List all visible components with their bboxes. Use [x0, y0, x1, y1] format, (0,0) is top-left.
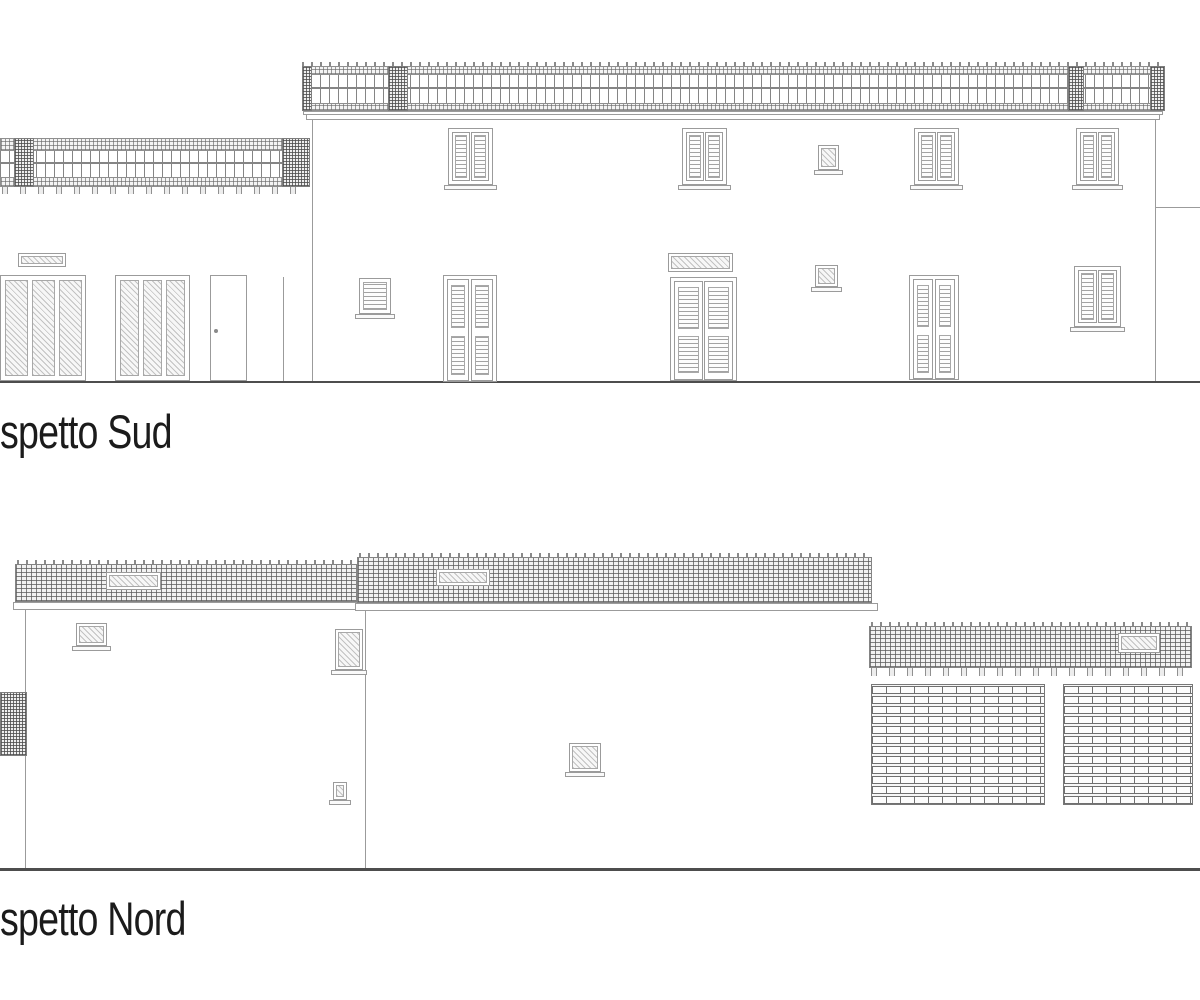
roof-a-vent [106, 572, 161, 590]
ground-window-right-sill [1070, 327, 1125, 332]
upper-window-1-sill [444, 185, 497, 190]
ground-line-sud [0, 381, 1200, 383]
roof-a-vent-glass [109, 575, 158, 587]
main-pergola-top-band [302, 66, 1165, 75]
shuttered-door-3-louver-top [939, 285, 951, 327]
upper-window-4-shutter-right [1098, 132, 1115, 181]
north-window-1-sill [72, 646, 111, 651]
glazed-door-left-2-glass-panel [143, 280, 162, 376]
north-window-3 [569, 743, 601, 772]
ground-louver-window-louver [363, 282, 387, 310]
shuttered-door-1-leaf-right [471, 279, 493, 381]
north-window-3-sill [565, 772, 605, 777]
main-pergola-pillar-3 [1068, 66, 1084, 111]
wing-pergola-midrail [0, 162, 310, 164]
shuttered-door-3-leaf-left [913, 279, 933, 379]
elevation-label-nord: spetto Nord [0, 895, 256, 947]
main-wall-right-edge [1155, 119, 1156, 381]
glazed-door-left-1-glass-panel [59, 280, 82, 376]
roof-b-vent [436, 569, 490, 586]
shuttered-door-3-louver-top [917, 285, 929, 327]
transom-window-left-glass [21, 256, 63, 264]
glazed-door-left-2 [115, 275, 190, 381]
upper-window-4 [1076, 128, 1119, 185]
shuttered-door-3-louver-bottom [917, 335, 929, 373]
shuttered-door-1-leaf-left [447, 279, 469, 381]
shuttered-door-2-louver-bottom [708, 336, 729, 373]
roof-a-tile-band [15, 564, 357, 602]
ground-window-right-louver [1081, 273, 1094, 320]
main-pergola-bottom-band [302, 103, 1165, 111]
ground-window-right-shutter-right [1098, 270, 1117, 323]
upper-window-4-sill [1072, 185, 1123, 190]
glazed-door-left-1-glass-panel [5, 280, 28, 376]
roof-b-fascia [355, 603, 878, 611]
upper-window-1 [448, 128, 493, 185]
north-vent-sill [329, 800, 351, 805]
service-door [210, 275, 247, 381]
adjacent-roofline-right [1155, 207, 1200, 208]
main-wall-left-edge [312, 119, 313, 381]
upper-window-3-shutter-right [937, 132, 955, 181]
upper-small-window-sill [814, 170, 843, 175]
upper-window-1-louver [455, 135, 467, 178]
upper-window-2-shutter-left [686, 132, 704, 181]
glazed-door-left-2-glass-panel [166, 280, 185, 376]
shuttered-door-1-louver-bottom [451, 336, 465, 375]
wing-pergola-pillar-right [282, 138, 310, 187]
shuttered-door-3 [909, 275, 959, 380]
shuttered-door-3-louver-bottom [939, 335, 951, 373]
upper-window-2 [682, 128, 727, 185]
ground-small-window-sill [811, 287, 842, 292]
upper-window-3-shutter-left [918, 132, 936, 181]
upper-window-2-louver [708, 135, 720, 178]
main-pergola-pillar-1 [302, 66, 312, 111]
wing-roof-vent [1118, 633, 1160, 653]
upper-window-3-louver [940, 135, 952, 178]
north-window-2-sill [331, 670, 367, 675]
upper-window-4-louver [1083, 135, 1094, 178]
wing-roof-vent-glass [1121, 636, 1157, 650]
shuttered-door-2-louver-top [678, 287, 699, 329]
upper-window-3 [914, 128, 959, 185]
brick-lattice-panel-1 [871, 684, 1045, 805]
shuttered-door-1 [443, 275, 497, 382]
transom-window-mid [668, 253, 733, 272]
ground-louver-window [359, 278, 391, 314]
upper-window-3-sill [910, 185, 963, 190]
ground-louver-window-sill [355, 314, 395, 319]
main-pergola-posts [302, 75, 1165, 103]
wing-pergola-feet [2, 187, 308, 194]
elevation-drawing-canvas: spetto Sudspetto Nord [0, 0, 1200, 1000]
upper-window-3-louver [921, 135, 933, 178]
main-pergola-pillar-2 [388, 66, 408, 111]
ground-small-window [815, 265, 838, 287]
wing-roof-feet [871, 668, 1192, 676]
main-wall-top-edge [312, 119, 1155, 120]
service-door-knob [214, 329, 218, 333]
north-wall-division [365, 610, 366, 868]
main-pergola-pillar-4 [1150, 66, 1165, 111]
upper-small-window-glass [821, 148, 836, 167]
shuttered-door-1-louver-top [451, 285, 465, 328]
upper-window-4-louver [1101, 135, 1112, 178]
brick-lattice-panel-2 [1063, 684, 1193, 805]
shuttered-door-1-louver-bottom [475, 336, 489, 375]
upper-window-2-shutter-right [705, 132, 723, 181]
wing-pergola-bottom-band [0, 177, 310, 187]
roof-b-tile-band [357, 557, 872, 603]
wing-wall-corner [283, 277, 284, 381]
roof-a-fascia [13, 602, 361, 610]
upper-small-window [818, 145, 839, 170]
north-vent-glass [336, 785, 344, 797]
roof-b-vent-glass [439, 572, 487, 583]
upper-window-2-sill [678, 185, 731, 190]
upper-window-1-shutter-left [452, 132, 470, 181]
north-window-2 [335, 629, 363, 670]
wing-pergola-top-band [0, 138, 310, 151]
transom-window-mid-glass [671, 256, 730, 269]
upper-window-4-shutter-left [1080, 132, 1097, 181]
ground-window-right [1074, 266, 1121, 327]
glazed-door-left-2-glass-panel [120, 280, 139, 376]
upper-window-2-louver [689, 135, 701, 178]
shuttered-door-2 [670, 277, 737, 381]
shuttered-door-1-louver-top [475, 285, 489, 328]
elevation-label-sud: spetto Sud [0, 408, 240, 458]
upper-window-1-louver [474, 135, 486, 178]
north-window-1 [76, 623, 107, 646]
ground-small-window-glass [818, 268, 835, 284]
north-window-3-glass [572, 746, 598, 769]
upper-window-1-shutter-right [471, 132, 489, 181]
shuttered-door-2-louver-bottom [678, 336, 699, 373]
wing-pergola-pillar-left [14, 138, 34, 187]
north-window-1-glass [79, 626, 104, 643]
ground-window-right-shutter-left [1078, 270, 1097, 323]
glazed-door-left-1 [0, 275, 86, 381]
lattice-block-left [0, 692, 27, 756]
transom-window-left [18, 253, 66, 267]
shuttered-door-2-leaf-left [674, 281, 703, 380]
north-window-2-glass [338, 632, 360, 667]
shuttered-door-2-louver-top [708, 287, 729, 329]
shuttered-door-2-leaf-right [704, 281, 733, 380]
main-pergola-midrail [302, 87, 1165, 89]
shuttered-door-3-leaf-right [935, 279, 955, 379]
wing-pergola-posts [0, 151, 310, 177]
ground-line-nord [0, 868, 1200, 871]
glazed-door-left-1-glass-panel [32, 280, 55, 376]
ground-window-right-louver [1101, 273, 1114, 320]
north-vent [333, 782, 347, 800]
